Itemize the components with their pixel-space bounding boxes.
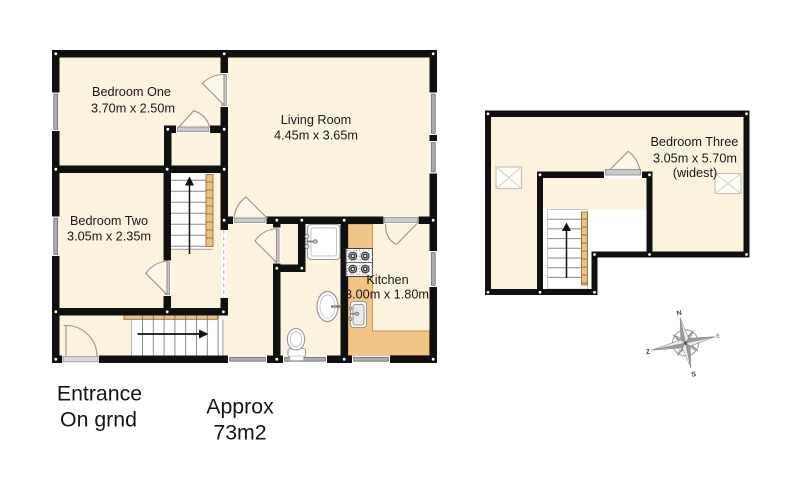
svg-text:3.05m x 2.35m: 3.05m x 2.35m [67,230,151,244]
svg-text:Living Room: Living Room [281,113,352,127]
svg-text:3.70m x 2.50m: 3.70m x 2.50m [91,102,175,116]
svg-text:Entrance: Entrance [57,382,142,406]
svg-text:73m2: 73m2 [213,420,266,444]
svg-text:Kitchen: Kitchen [366,273,408,287]
svg-text:Bedroom One: Bedroom One [92,85,171,99]
svg-text:(widest): (widest) [673,166,717,180]
svg-text:4.45m x 3.65m: 4.45m x 3.65m [274,129,358,143]
svg-text:Bedroom Three: Bedroom Three [650,135,738,149]
svg-text:3.05m x 5.70m: 3.05m x 5.70m [653,152,737,166]
svg-text:Approx: Approx [206,395,274,419]
svg-text:On grnd: On grnd [60,407,137,431]
svg-text:Bedroom Two: Bedroom Two [70,214,148,228]
svg-text:3.00m x 1.80m: 3.00m x 1.80m [345,287,429,301]
